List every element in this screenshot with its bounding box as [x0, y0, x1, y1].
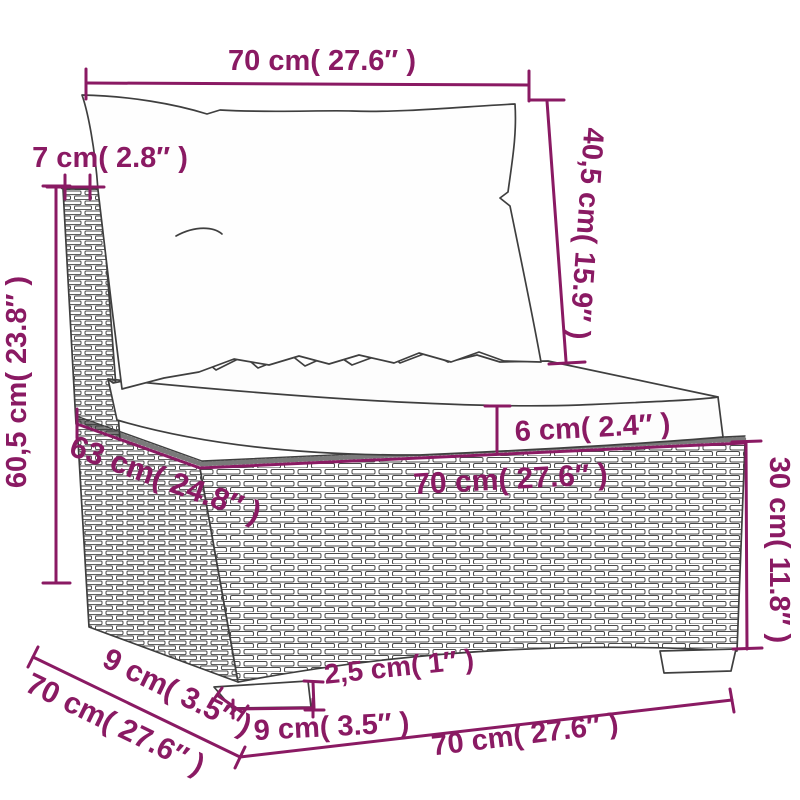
sofa-line-art: [62, 95, 745, 708]
label-top-width: 70 cm( 27.6″ ): [228, 45, 416, 77]
dimension-diagram: 70 cm( 27.6″ ) 7 cm( 2.8″ ) 60,5 cm( 23.…: [0, 0, 800, 800]
right-foot: [660, 649, 736, 673]
label-overall-height: 60,5 cm( 23.8″ ): [1, 276, 33, 488]
label-back-frame-depth: 7 cm( 2.8″ ): [32, 142, 188, 174]
back-cushion: [82, 95, 541, 389]
label-base-width-bottom: 70 cm( 27.6″ ): [430, 708, 620, 763]
label-back-cushion-height: 40,5 cm( 15.9″ ): [563, 127, 610, 341]
label-base-height: 30 cm( 11.8″ ): [763, 457, 795, 643]
